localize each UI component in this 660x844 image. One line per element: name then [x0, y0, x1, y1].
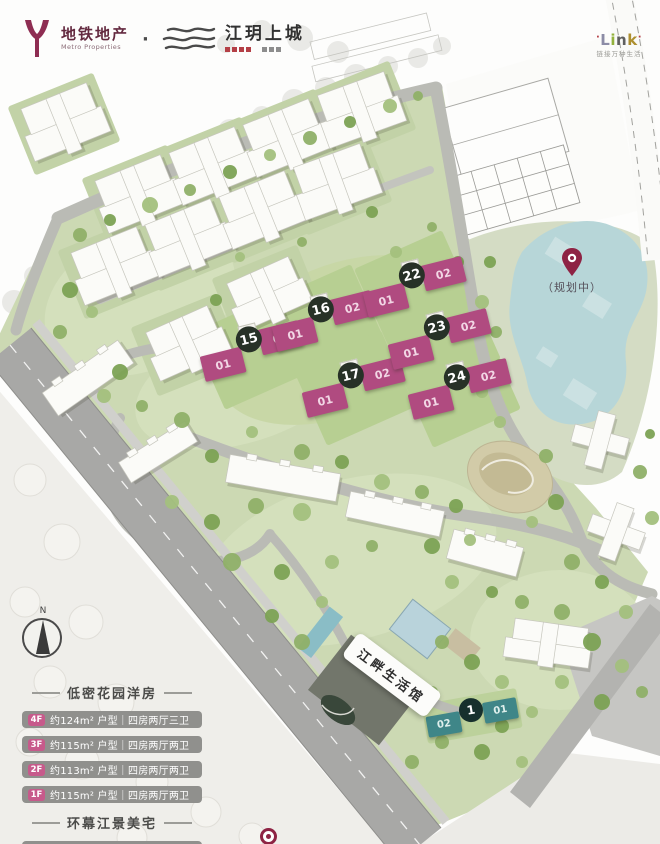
compass-needle [36, 620, 50, 654]
floor-badge: 2F [28, 764, 45, 776]
header-brand-bar: 地铁地产 Metro Properties · 江玥上城 [22, 20, 305, 58]
legend-row-2f: 2F 约113m² 户型｜四房两厅两卫 [22, 761, 202, 778]
compass-icon: N [20, 606, 66, 666]
legend-panel: 低密花园洋房 4F 约124m² 户型｜四房两厅三卫 3F 约115m² 户型｜… [22, 683, 202, 844]
legend-row-4f: 4F 约124m² 户型｜四房两厅三卫 [22, 711, 202, 728]
brand1-name: 地铁地产 [61, 27, 129, 42]
legend-row-1f: 1F 约115m² 户型｜四房两厅两卫 [22, 786, 202, 803]
brand2-name: 江玥上城 [225, 26, 305, 43]
site-plan-poster: 地铁地产 Metro Properties · 江玥上城 ·Link· 链接万种… [0, 0, 660, 844]
unit-label: 01 [482, 697, 519, 724]
legend-row-3f: 3F 约115m² 户型｜四房两厅两卫 [22, 736, 202, 753]
planned-area-marker: （规划中） [532, 248, 612, 295]
brand-separator: · [142, 29, 149, 50]
floor-badge: 3F [28, 739, 45, 751]
compass-north-label: N [20, 606, 66, 616]
link-brand-block: ·Link· 链接万种生活 [584, 33, 654, 58]
unit-label: 02 [425, 711, 462, 738]
brand1-subtitle: Metro Properties [61, 44, 129, 51]
wave-logo-icon [162, 25, 216, 53]
target-pin-icon [260, 828, 277, 844]
floor-badge: 4F [28, 714, 45, 726]
planned-label: （规划中） [532, 279, 612, 295]
brand2-subtext-marks [225, 47, 305, 52]
link-slogan: 链接万种生活 [584, 51, 654, 58]
link-logo: ·Link· [584, 33, 654, 48]
floor-badge: 1F [28, 789, 45, 801]
legend-section1-title: 低密花园洋房 [22, 683, 202, 702]
map-pin-icon [561, 248, 583, 276]
metro-properties-logo-icon [22, 20, 52, 58]
legend-section2-title: 环幕江景美宅 [22, 813, 202, 832]
